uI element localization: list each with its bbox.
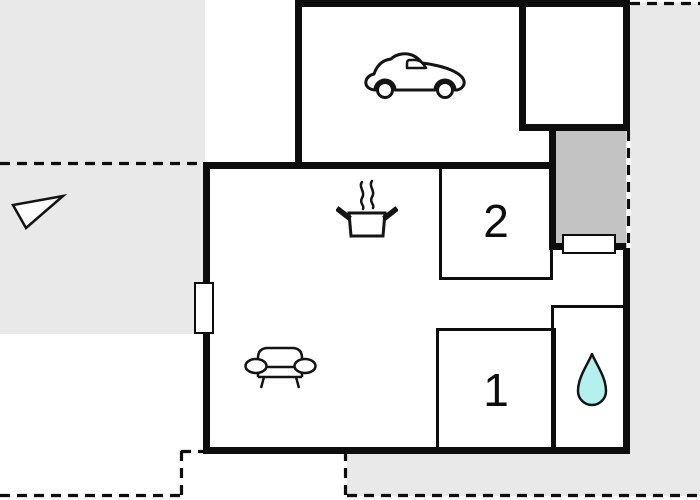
wall-garage-left	[295, 0, 302, 169]
patio	[180, 450, 347, 500]
wall-right-upper	[623, 0, 630, 131]
room-bedroom-2: 2	[439, 162, 553, 280]
wall-storage-bottom	[519, 124, 630, 131]
garden-area-bottom	[347, 450, 628, 496]
north-arrow-icon	[8, 191, 70, 235]
room-2-label: 2	[483, 198, 509, 244]
terrace	[553, 128, 629, 250]
sofa-icon	[242, 342, 318, 390]
terrace-door	[562, 234, 616, 254]
water-drop-icon	[574, 351, 610, 409]
car-icon	[362, 51, 468, 103]
room-1-label: 1	[483, 367, 509, 413]
wall-garage-top	[295, 0, 630, 7]
wall-storage-left	[519, 0, 526, 131]
garden-area-left	[0, 0, 205, 334]
stove-icon	[336, 178, 398, 240]
room-bedroom-1: 1	[436, 328, 556, 452]
floor-plan: 2 1	[0, 0, 700, 500]
window-left-wall	[194, 282, 214, 334]
garden-area-right	[628, 3, 700, 496]
